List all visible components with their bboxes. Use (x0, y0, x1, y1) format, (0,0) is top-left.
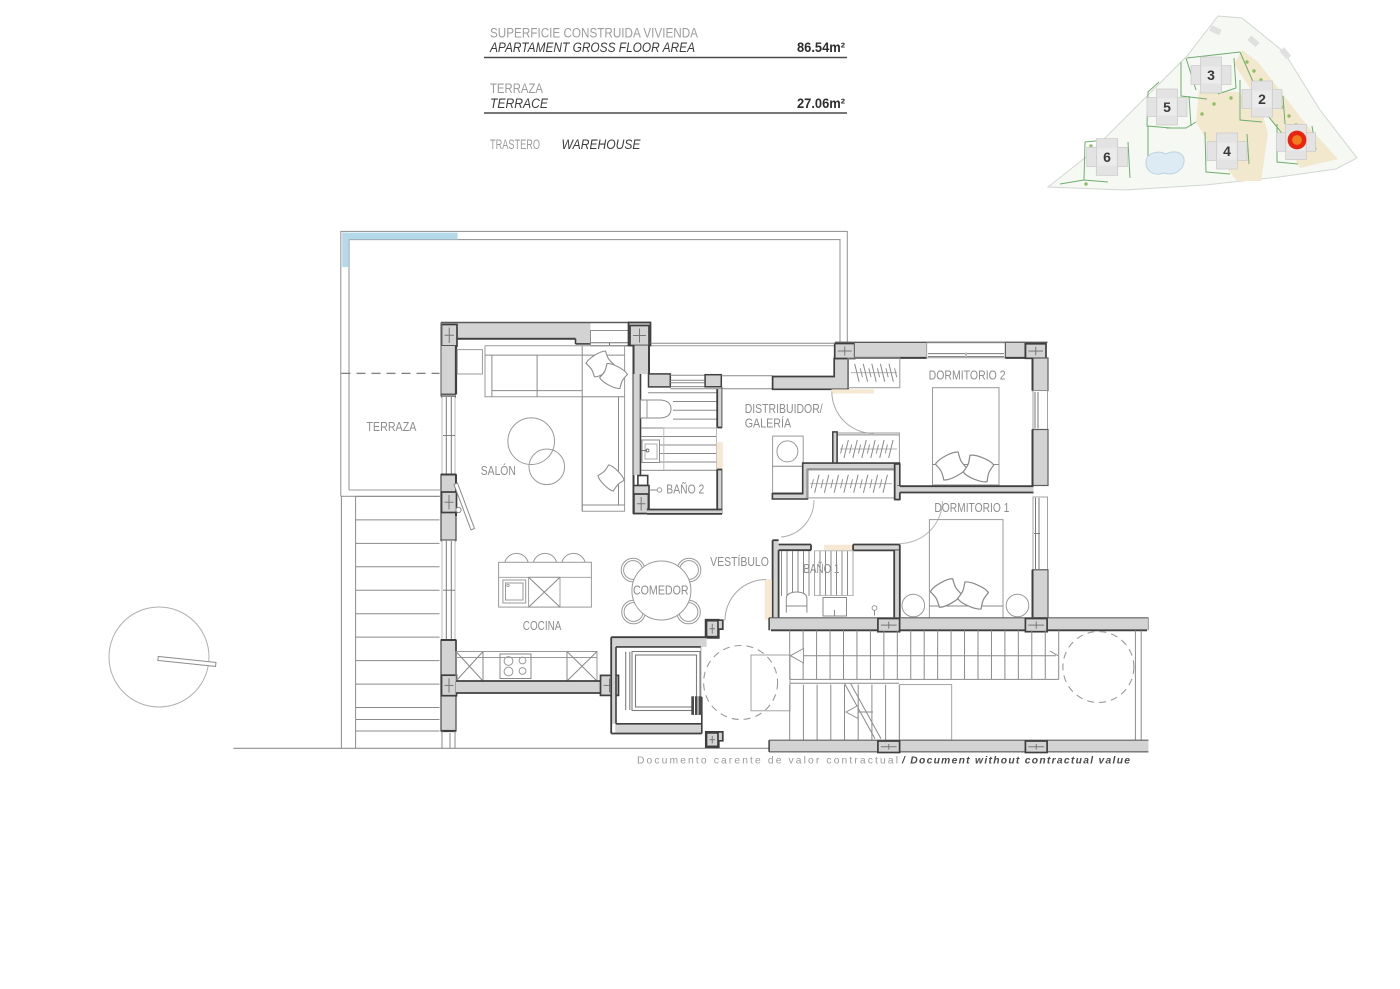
svg-text:TERRAZA: TERRAZA (490, 81, 543, 96)
svg-text:DISTRIBUIDOR/: DISTRIBUIDOR/ (745, 401, 823, 416)
svg-text:6: 6 (1103, 149, 1111, 165)
svg-text:BAÑO 2: BAÑO 2 (666, 482, 704, 497)
svg-text:VESTÍBULO: VESTÍBULO (710, 554, 769, 569)
svg-text:APARTAMENT GROSS FLOOR AREA: APARTAMENT GROSS FLOOR AREA (489, 40, 695, 55)
svg-text:DORMITORIO 2: DORMITORIO 2 (929, 368, 1006, 383)
svg-text:TERRAZA: TERRAZA (366, 419, 416, 434)
svg-text:2: 2 (1258, 91, 1266, 107)
svg-text:TRASTERO: TRASTERO (490, 137, 540, 152)
svg-text:WAREHOUSE: WAREHOUSE (562, 137, 642, 152)
svg-text:GALERÍA: GALERÍA (745, 416, 792, 431)
svg-text:3: 3 (1207, 67, 1215, 83)
svg-text:DORMITORIO 1: DORMITORIO 1 (934, 500, 1009, 515)
svg-text:4: 4 (1223, 143, 1231, 159)
svg-text:SALÓN: SALÓN (481, 463, 516, 478)
svg-text:SUPERFICIE CONSTRUIDA VIVIENDA: SUPERFICIE CONSTRUIDA VIVIENDA (490, 26, 698, 41)
svg-text:COMEDOR: COMEDOR (633, 584, 689, 598)
svg-text:COCINA: COCINA (523, 618, 562, 633)
svg-text:/ Document without contractual: / Document without contractual value (901, 756, 1130, 767)
svg-text:27.06m²: 27.06m² (797, 96, 846, 111)
svg-text:5: 5 (1163, 99, 1171, 115)
svg-text:86.54m²: 86.54m² (797, 40, 846, 55)
svg-text:TERRACE: TERRACE (490, 96, 549, 111)
svg-text:BAÑO 1: BAÑO 1 (803, 561, 839, 576)
